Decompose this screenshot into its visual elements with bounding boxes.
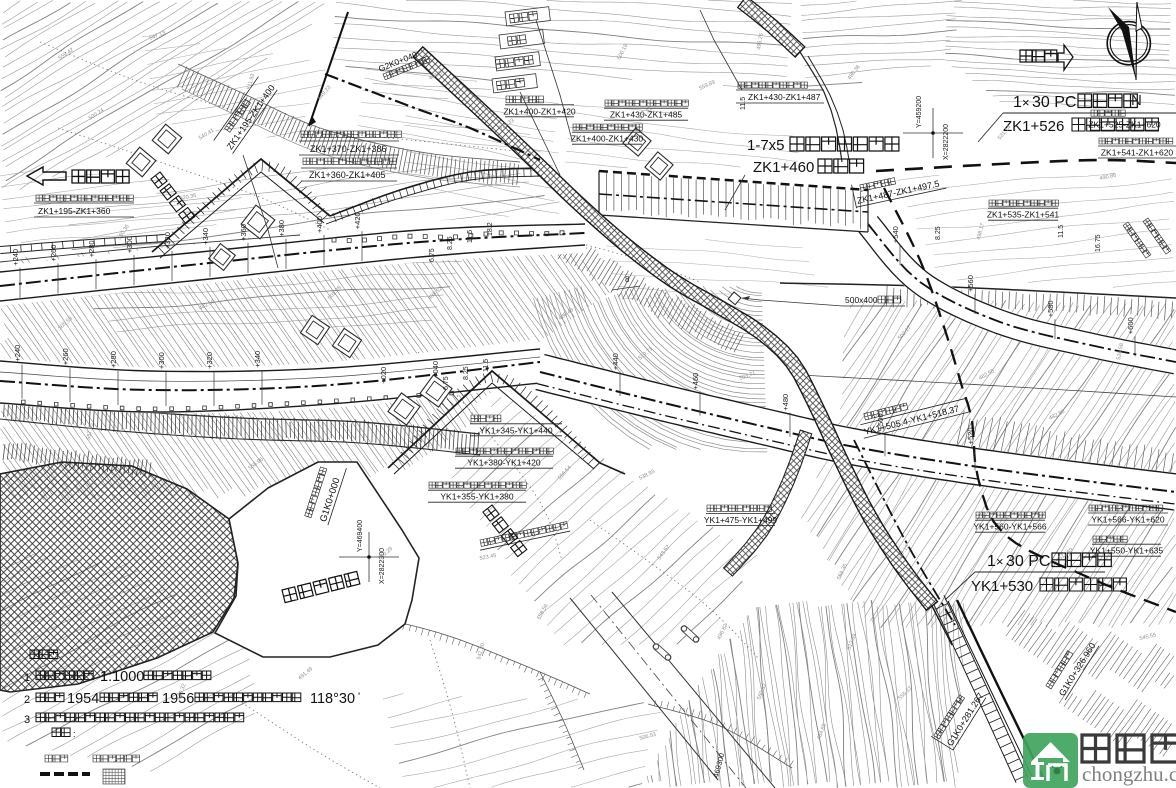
svg-text:ZK1+535-ZK1+541: ZK1+535-ZK1+541: [987, 210, 1060, 220]
svg-text:8: 8: [625, 275, 630, 284]
svg-text:1954: 1954: [67, 691, 99, 707]
svg-text:YK1+530: YK1+530: [971, 578, 1033, 595]
svg-text:×: ×: [1022, 95, 1030, 110]
svg-text:ZK1+195-ZK1+360: ZK1+195-ZK1+360: [38, 206, 111, 216]
svg-text:1: 1: [24, 672, 30, 684]
svg-text:+420: +420: [353, 212, 362, 229]
svg-text:YK1+560-YK1+566: YK1+560-YK1+566: [973, 522, 1047, 532]
svg-text:+560: +560: [966, 275, 975, 292]
svg-text:ZK1+460: ZK1+460: [753, 159, 814, 176]
svg-text:ZK1+400-ZK1+420: ZK1+400-ZK1+420: [503, 106, 576, 116]
svg-text:1:1000: 1:1000: [100, 669, 144, 685]
svg-text:YK1+550-YK1+635: YK1+550-YK1+635: [1090, 546, 1164, 556]
svg-text:+240: +240: [13, 345, 22, 362]
svg-text:+360: +360: [239, 224, 248, 241]
svg-text:8.25: 8.25: [447, 236, 454, 250]
svg-text:+040: +040: [431, 361, 440, 378]
svg-text:+520: +520: [966, 427, 975, 444]
svg-text:6.75: 6.75: [429, 248, 436, 262]
svg-text:ZK1+430-ZK1+487: ZK1+430-ZK1+487: [748, 92, 821, 102]
svg-text:YK1+355-YK1+380: YK1+355-YK1+380: [440, 492, 514, 502]
svg-text:+240: +240: [11, 249, 20, 266]
svg-text:+300: +300: [157, 352, 166, 369]
svg-text:+380: +380: [277, 220, 286, 237]
svg-text:+020: +020: [379, 367, 388, 384]
svg-text:1: 1: [1013, 94, 1022, 111]
svg-text:+260: +260: [49, 245, 58, 262]
svg-text:18.2: 18.2: [487, 222, 494, 236]
svg-text:2: 2: [24, 694, 30, 706]
svg-text:1: 1: [987, 553, 996, 570]
svg-text:500x400: 500x400: [845, 295, 878, 305]
svg-text:X=2822200: X=2822200: [943, 124, 950, 160]
svg-text:30 PC: 30 PC: [1032, 94, 1076, 111]
svg-text:chongzhu.cn: chongzhu.cn: [1082, 762, 1176, 786]
svg-text:ZK1+400-ZK1+430: ZK1+400-ZK1+430: [571, 134, 644, 144]
svg-text:11.5: 11.5: [1058, 225, 1065, 238]
svg-text:': ': [358, 691, 360, 703]
svg-text:+280: +280: [109, 351, 118, 368]
svg-text:YK1+345-YK1+440: YK1+345-YK1+440: [479, 425, 553, 435]
svg-text:×: ×: [996, 554, 1004, 569]
svg-text:+260: +260: [61, 348, 70, 365]
svg-text:ZK1+541-ZK1+620: ZK1+541-ZK1+620: [1101, 148, 1174, 158]
svg-text:8.25: 8.25: [463, 366, 470, 380]
svg-text:+600: +600: [1126, 317, 1135, 334]
svg-text:ZK1+526: ZK1+526: [1003, 118, 1064, 135]
svg-text:+340: +340: [253, 351, 262, 368]
svg-text:ZK1+360-ZK1+405: ZK1+360-ZK1+405: [309, 170, 386, 180]
svg-text:+400: +400: [315, 216, 324, 233]
svg-text:+440: +440: [611, 353, 620, 370]
svg-text:+540: +540: [891, 226, 900, 243]
svg-text:1-7x5: 1-7x5: [747, 137, 785, 154]
svg-text:+320: +320: [163, 232, 172, 249]
svg-text:N: N: [1131, 92, 1142, 109]
svg-text:11.5: 11.5: [483, 359, 490, 372]
svg-text:+280: +280: [87, 240, 96, 257]
svg-text:16.75: 16.75: [1095, 234, 1102, 252]
svg-text:+580: +580: [1046, 300, 1055, 317]
svg-text:118°30: 118°30: [310, 691, 355, 707]
svg-text:6.75: 6.75: [443, 376, 450, 390]
svg-text:YK1+475-YK1+499: YK1+475-YK1+499: [704, 515, 778, 525]
svg-text:Y=469400: Y=469400: [357, 520, 364, 552]
svg-text:30 PC: 30 PC: [1006, 553, 1050, 570]
svg-text:11.5: 11.5: [467, 230, 474, 243]
svg-text:+480: +480: [781, 394, 790, 411]
svg-text:+320: +320: [205, 352, 214, 369]
svg-text:8.25: 8.25: [935, 226, 942, 240]
svg-text:+340: +340: [201, 228, 210, 245]
svg-text:3: 3: [24, 714, 30, 726]
svg-text:YK1+380-YK1+420: YK1+380-YK1+420: [467, 458, 541, 468]
svg-text::: :: [73, 729, 76, 739]
svg-text:+300: +300: [125, 236, 134, 253]
svg-text:YK1+566-YK1+620: YK1+566-YK1+620: [1091, 515, 1165, 525]
svg-text:ZK1+370-ZK1+386: ZK1+370-ZK1+386: [310, 144, 387, 154]
svg-text:+460: +460: [691, 373, 700, 390]
svg-text:Y=459200: Y=459200: [916, 96, 923, 128]
